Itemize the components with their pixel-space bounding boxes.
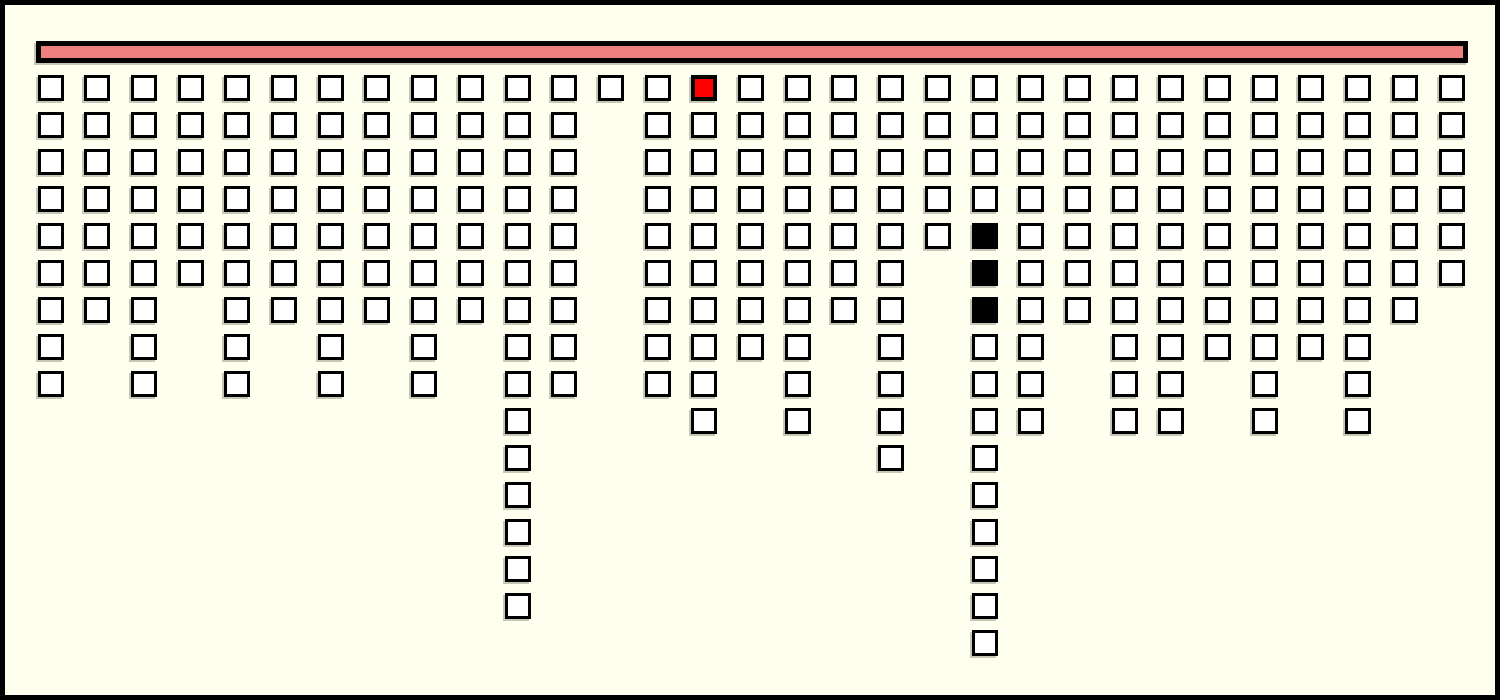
unit-square <box>1158 260 1184 286</box>
unit-square <box>131 149 157 175</box>
unit-square <box>1158 371 1184 397</box>
unit-square <box>551 112 577 138</box>
unit-square <box>1112 334 1138 360</box>
unit-square <box>178 149 204 175</box>
unit-square <box>645 186 671 212</box>
unit-square <box>178 112 204 138</box>
unit-square <box>411 112 437 138</box>
unit-square <box>1205 186 1231 212</box>
unit-square <box>1158 75 1184 101</box>
unit-square <box>1345 149 1371 175</box>
unit-square <box>972 75 998 101</box>
unit-square <box>364 149 390 175</box>
unit-square <box>411 297 437 323</box>
unit-square <box>1345 408 1371 434</box>
unit-square <box>1158 112 1184 138</box>
unit-square <box>645 149 671 175</box>
unit-square <box>364 112 390 138</box>
unit-square <box>1392 112 1418 138</box>
unit-square <box>1112 223 1138 249</box>
unit-square <box>178 186 204 212</box>
unit-square <box>1298 149 1324 175</box>
unit-square <box>318 223 344 249</box>
unit-square <box>318 371 344 397</box>
unit-square <box>1112 112 1138 138</box>
unit-square <box>831 112 857 138</box>
unit-square <box>1252 223 1278 249</box>
unit-square <box>224 334 250 360</box>
unit-square <box>1065 112 1091 138</box>
unit-square <box>1112 408 1138 434</box>
unit-square <box>1439 223 1465 249</box>
unit-square <box>878 297 904 323</box>
unit-square <box>972 149 998 175</box>
unit-square <box>691 297 717 323</box>
unit-square <box>1345 260 1371 286</box>
unit-square <box>785 260 811 286</box>
unit-square <box>224 223 250 249</box>
unit-square <box>878 186 904 212</box>
unit-square <box>1252 75 1278 101</box>
unit-square <box>1298 297 1324 323</box>
unit-square <box>318 334 344 360</box>
unit-square <box>1112 75 1138 101</box>
unit-square <box>831 149 857 175</box>
unit-square <box>1205 112 1231 138</box>
unit-square <box>785 297 811 323</box>
unit-square <box>691 334 717 360</box>
unit-square <box>1065 297 1091 323</box>
unit-square <box>505 408 531 434</box>
unit-square <box>271 75 297 101</box>
unit-square <box>131 371 157 397</box>
unit-square <box>1439 112 1465 138</box>
unit-square <box>1298 223 1324 249</box>
board-frame <box>0 0 1500 700</box>
unit-square <box>691 186 717 212</box>
unit-square <box>318 149 344 175</box>
unit-square <box>1252 371 1278 397</box>
unit-square <box>645 371 671 397</box>
unit-square <box>458 75 484 101</box>
black-unit <box>972 260 998 286</box>
unit-square <box>84 112 110 138</box>
unit-square <box>411 371 437 397</box>
unit-square <box>178 75 204 101</box>
unit-square <box>645 112 671 138</box>
unit-square <box>224 186 250 212</box>
unit-square <box>878 445 904 471</box>
unit-square <box>645 297 671 323</box>
unit-square <box>1345 371 1371 397</box>
unit-square <box>1345 186 1371 212</box>
unit-square <box>831 186 857 212</box>
unit-square <box>131 297 157 323</box>
unit-square <box>691 223 717 249</box>
unit-square <box>691 149 717 175</box>
unit-square <box>551 297 577 323</box>
unit-square <box>1018 334 1044 360</box>
unit-square <box>972 371 998 397</box>
unit-square <box>131 75 157 101</box>
unit-square <box>551 186 577 212</box>
unit-square <box>551 260 577 286</box>
unit-square <box>505 223 531 249</box>
unit-square <box>178 223 204 249</box>
unit-square <box>925 223 951 249</box>
unit-square <box>925 149 951 175</box>
unit-square <box>411 149 437 175</box>
unit-square <box>178 260 204 286</box>
unit-square <box>785 75 811 101</box>
unit-square <box>1252 112 1278 138</box>
unit-square <box>131 186 157 212</box>
unit-square <box>1392 75 1418 101</box>
unit-square <box>1018 260 1044 286</box>
unit-square <box>785 408 811 434</box>
unit-square <box>271 260 297 286</box>
unit-square <box>1392 149 1418 175</box>
unit-square <box>505 519 531 545</box>
unit-square <box>1205 149 1231 175</box>
unit-square <box>925 186 951 212</box>
unit-square <box>1065 149 1091 175</box>
unit-square <box>505 482 531 508</box>
unit-square <box>1018 297 1044 323</box>
unit-square <box>1252 408 1278 434</box>
unit-square <box>551 75 577 101</box>
unit-square <box>271 149 297 175</box>
unit-square <box>1298 260 1324 286</box>
unit-square <box>458 112 484 138</box>
unit-square <box>1252 334 1278 360</box>
unit-square <box>1298 334 1324 360</box>
unit-square <box>1392 186 1418 212</box>
unit-square <box>551 149 577 175</box>
unit-square <box>1018 408 1044 434</box>
unit-square <box>224 112 250 138</box>
unit-square <box>645 334 671 360</box>
unit-square <box>458 149 484 175</box>
unit-square <box>1345 112 1371 138</box>
unit-square <box>1112 371 1138 397</box>
unit-square <box>364 297 390 323</box>
unit-square <box>1158 334 1184 360</box>
unit-square <box>738 297 764 323</box>
unit-square <box>1298 186 1324 212</box>
unit-square <box>131 260 157 286</box>
unit-square <box>224 75 250 101</box>
unit-square <box>131 334 157 360</box>
unit-square <box>785 186 811 212</box>
unit-square <box>84 297 110 323</box>
unit-square <box>1392 223 1418 249</box>
unit-square <box>38 334 64 360</box>
unit-square <box>458 223 484 249</box>
unit-square <box>318 186 344 212</box>
unit-square <box>972 112 998 138</box>
unit-square <box>411 334 437 360</box>
unit-square <box>551 223 577 249</box>
unit-square <box>1252 186 1278 212</box>
unit-square <box>84 223 110 249</box>
unit-square <box>738 186 764 212</box>
unit-square <box>1298 75 1324 101</box>
unit-square <box>1158 408 1184 434</box>
unit-square <box>738 334 764 360</box>
unit-square <box>505 149 531 175</box>
unit-square <box>1439 149 1465 175</box>
unit-square <box>84 186 110 212</box>
unit-square <box>364 75 390 101</box>
unit-square <box>1345 297 1371 323</box>
unit-square <box>878 223 904 249</box>
unit-square <box>505 371 531 397</box>
unit-square <box>972 408 998 434</box>
unit-square <box>1065 223 1091 249</box>
unit-square <box>878 334 904 360</box>
unit-square <box>1298 112 1324 138</box>
unit-square <box>738 112 764 138</box>
unit-square <box>38 223 64 249</box>
unit-square <box>38 112 64 138</box>
unit-square <box>691 112 717 138</box>
unit-square <box>84 149 110 175</box>
unit-square <box>831 223 857 249</box>
unit-square <box>972 334 998 360</box>
unit-square <box>1158 297 1184 323</box>
unit-square <box>878 408 904 434</box>
unit-square <box>271 297 297 323</box>
unit-square <box>785 334 811 360</box>
unit-square <box>691 371 717 397</box>
unit-square <box>411 186 437 212</box>
unit-square <box>505 112 531 138</box>
unit-square <box>505 593 531 619</box>
unit-square <box>224 297 250 323</box>
unit-square <box>224 371 250 397</box>
unit-square <box>972 482 998 508</box>
unit-square <box>224 149 250 175</box>
unit-square <box>271 186 297 212</box>
unit-square <box>878 371 904 397</box>
unit-square <box>831 297 857 323</box>
unit-square <box>878 112 904 138</box>
unit-square <box>1018 149 1044 175</box>
unit-square <box>38 260 64 286</box>
red-unit <box>691 75 717 101</box>
unit-square <box>1018 186 1044 212</box>
unit-square <box>458 297 484 323</box>
unit-square <box>38 371 64 397</box>
unit-square <box>1065 186 1091 212</box>
unit-square <box>1112 297 1138 323</box>
unit-square <box>1112 186 1138 212</box>
unit-square <box>1205 334 1231 360</box>
unit-square <box>1392 260 1418 286</box>
unit-square <box>271 223 297 249</box>
unit-square <box>38 186 64 212</box>
unit-square <box>972 445 998 471</box>
unit-square <box>972 186 998 212</box>
unit-square <box>364 260 390 286</box>
unit-square <box>505 334 531 360</box>
unit-square <box>1158 149 1184 175</box>
black-unit <box>972 297 998 323</box>
unit-square <box>1205 297 1231 323</box>
unit-square <box>318 260 344 286</box>
unit-square <box>972 519 998 545</box>
unit-square <box>1345 334 1371 360</box>
unit-square <box>318 75 344 101</box>
unit-square <box>38 149 64 175</box>
unit-square <box>131 223 157 249</box>
unit-square <box>645 223 671 249</box>
unit-square <box>1392 297 1418 323</box>
unit-square <box>691 408 717 434</box>
unit-square <box>1345 223 1371 249</box>
unit-square <box>364 223 390 249</box>
unit-square <box>411 260 437 286</box>
unit-square <box>271 112 297 138</box>
unit-square <box>38 297 64 323</box>
unit-square <box>1158 186 1184 212</box>
unit-square <box>411 223 437 249</box>
unit-square <box>972 556 998 582</box>
unit-square <box>1205 75 1231 101</box>
unit-square <box>1112 149 1138 175</box>
unit-square <box>972 630 998 656</box>
unit-square <box>84 75 110 101</box>
unit-square <box>645 260 671 286</box>
unit-square <box>972 593 998 619</box>
unit-square <box>1065 260 1091 286</box>
unit-square <box>38 75 64 101</box>
unit-square <box>551 334 577 360</box>
unit-square <box>1439 260 1465 286</box>
unit-square <box>1345 75 1371 101</box>
unit-square <box>1252 260 1278 286</box>
unit-square <box>505 75 531 101</box>
unit-square <box>831 75 857 101</box>
unit-square <box>878 149 904 175</box>
unit-square <box>1018 75 1044 101</box>
unit-square <box>598 75 624 101</box>
unit-square <box>1252 297 1278 323</box>
unit-square <box>785 223 811 249</box>
unit-square <box>738 223 764 249</box>
unit-square <box>551 371 577 397</box>
unit-square <box>738 260 764 286</box>
unit-square <box>831 260 857 286</box>
unit-square <box>1018 112 1044 138</box>
unit-square <box>738 75 764 101</box>
unit-square <box>925 112 951 138</box>
black-unit <box>972 223 998 249</box>
unit-square <box>878 75 904 101</box>
unit-square <box>505 556 531 582</box>
unit-square <box>878 260 904 286</box>
unit-square <box>318 297 344 323</box>
unit-square <box>505 297 531 323</box>
unit-grid <box>5 5 1495 695</box>
unit-square <box>458 186 484 212</box>
unit-square <box>925 75 951 101</box>
unit-square <box>691 260 717 286</box>
unit-square <box>1252 149 1278 175</box>
unit-square <box>1018 371 1044 397</box>
unit-square <box>1439 75 1465 101</box>
unit-square <box>505 445 531 471</box>
unit-square <box>1158 223 1184 249</box>
unit-square <box>1205 223 1231 249</box>
unit-square <box>1112 260 1138 286</box>
unit-square <box>738 149 764 175</box>
unit-square <box>84 260 110 286</box>
unit-square <box>645 75 671 101</box>
unit-square <box>1065 75 1091 101</box>
unit-square <box>1205 260 1231 286</box>
unit-square <box>785 371 811 397</box>
unit-square <box>785 112 811 138</box>
unit-square <box>364 186 390 212</box>
unit-square <box>505 186 531 212</box>
unit-square <box>1439 186 1465 212</box>
unit-square <box>411 75 437 101</box>
unit-square <box>224 260 250 286</box>
unit-square <box>785 149 811 175</box>
unit-square <box>458 260 484 286</box>
unit-square <box>1018 223 1044 249</box>
unit-square <box>505 260 531 286</box>
unit-square <box>131 112 157 138</box>
unit-square <box>318 112 344 138</box>
